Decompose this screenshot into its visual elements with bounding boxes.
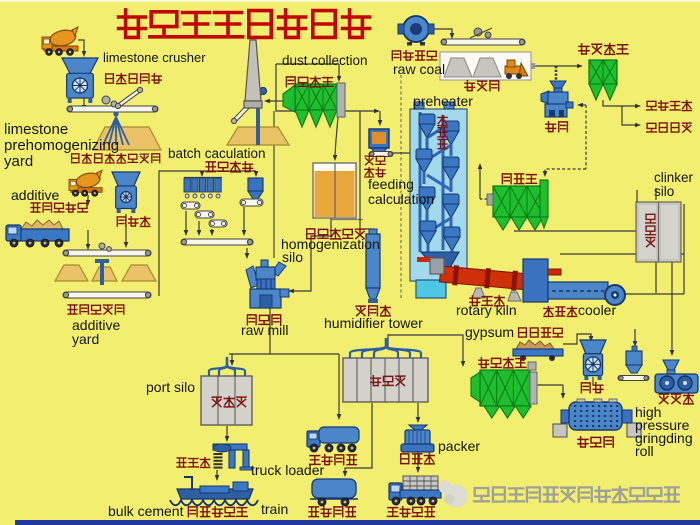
svg-text:gypsum: gypsum (465, 324, 514, 340)
svg-text:packer: packer (438, 438, 480, 454)
svg-text:cooler: cooler (578, 302, 616, 318)
svg-text:limestone crusher: limestone crusher (103, 50, 206, 65)
svg-text:calculation: calculation (368, 191, 434, 207)
svg-text:batch caculation: batch caculation (168, 146, 266, 161)
svg-text:prehomogenizing: prehomogenizing (4, 137, 119, 154)
svg-text:raw coal: raw coal (393, 61, 445, 77)
svg-text:silo: silo (282, 249, 303, 265)
svg-text:roll: roll (635, 443, 654, 459)
svg-text:additive: additive (11, 187, 59, 203)
svg-text:limestone: limestone (4, 121, 68, 138)
svg-text:feeding: feeding (368, 176, 414, 192)
svg-text:dust collection: dust collection (282, 53, 368, 68)
svg-text:yard: yard (72, 331, 99, 347)
svg-text:yard: yard (4, 153, 33, 170)
svg-text:rotary kiln: rotary kiln (456, 302, 517, 318)
svg-text:humidifier tower: humidifier tower (324, 315, 423, 331)
svg-text:port silo: port silo (146, 379, 195, 395)
svg-text:bulk cement: bulk cement (108, 503, 184, 519)
svg-text:preheater: preheater (413, 93, 473, 109)
svg-text:silo: silo (654, 184, 674, 199)
svg-text:train: train (261, 501, 288, 517)
svg-text:clinker: clinker (654, 170, 694, 185)
